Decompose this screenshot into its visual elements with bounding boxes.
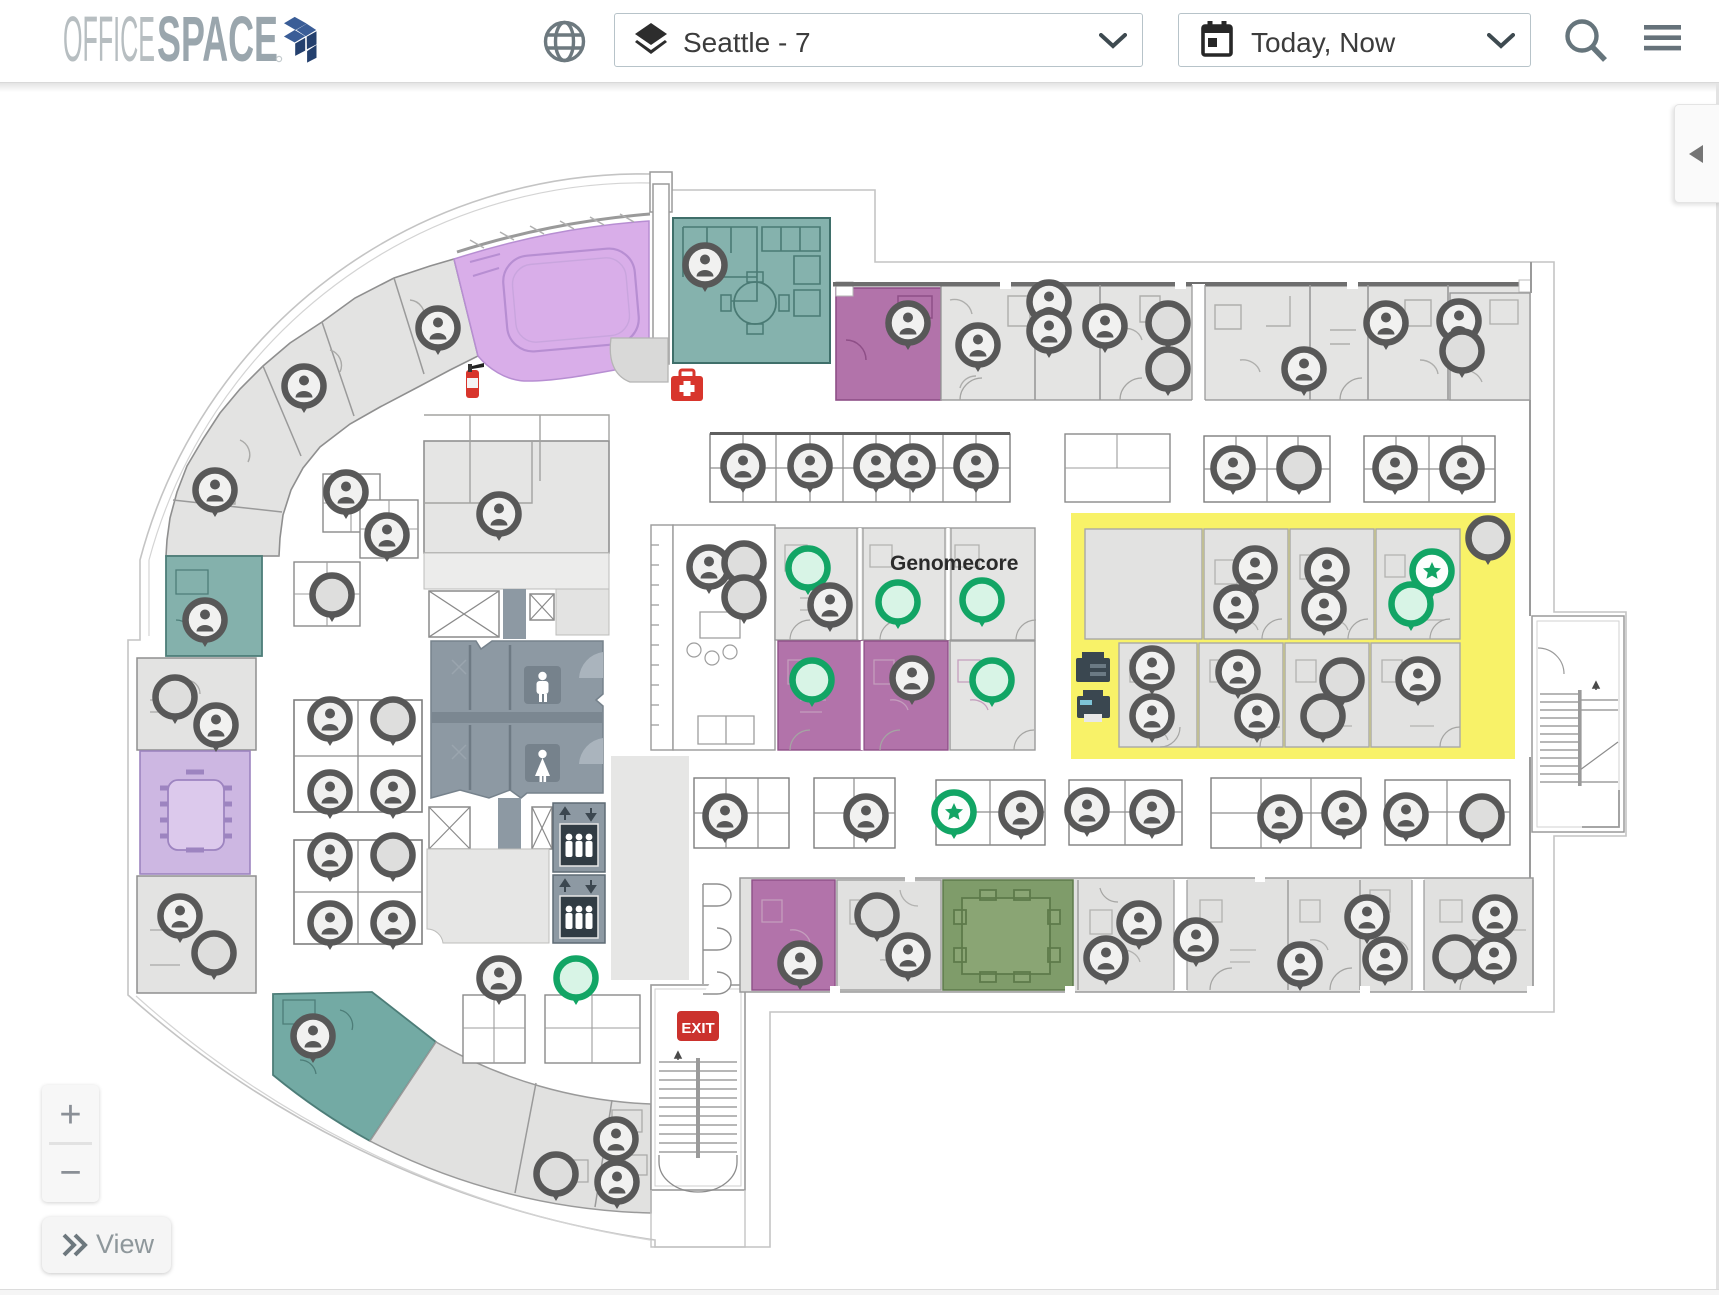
svg-text:SPACE: SPACE xyxy=(157,12,278,70)
svg-text:Genomecore: Genomecore xyxy=(890,552,1018,575)
svg-text:EXIT: EXIT xyxy=(681,1020,714,1037)
svg-text:OFFICE: OFFICE xyxy=(63,12,155,70)
